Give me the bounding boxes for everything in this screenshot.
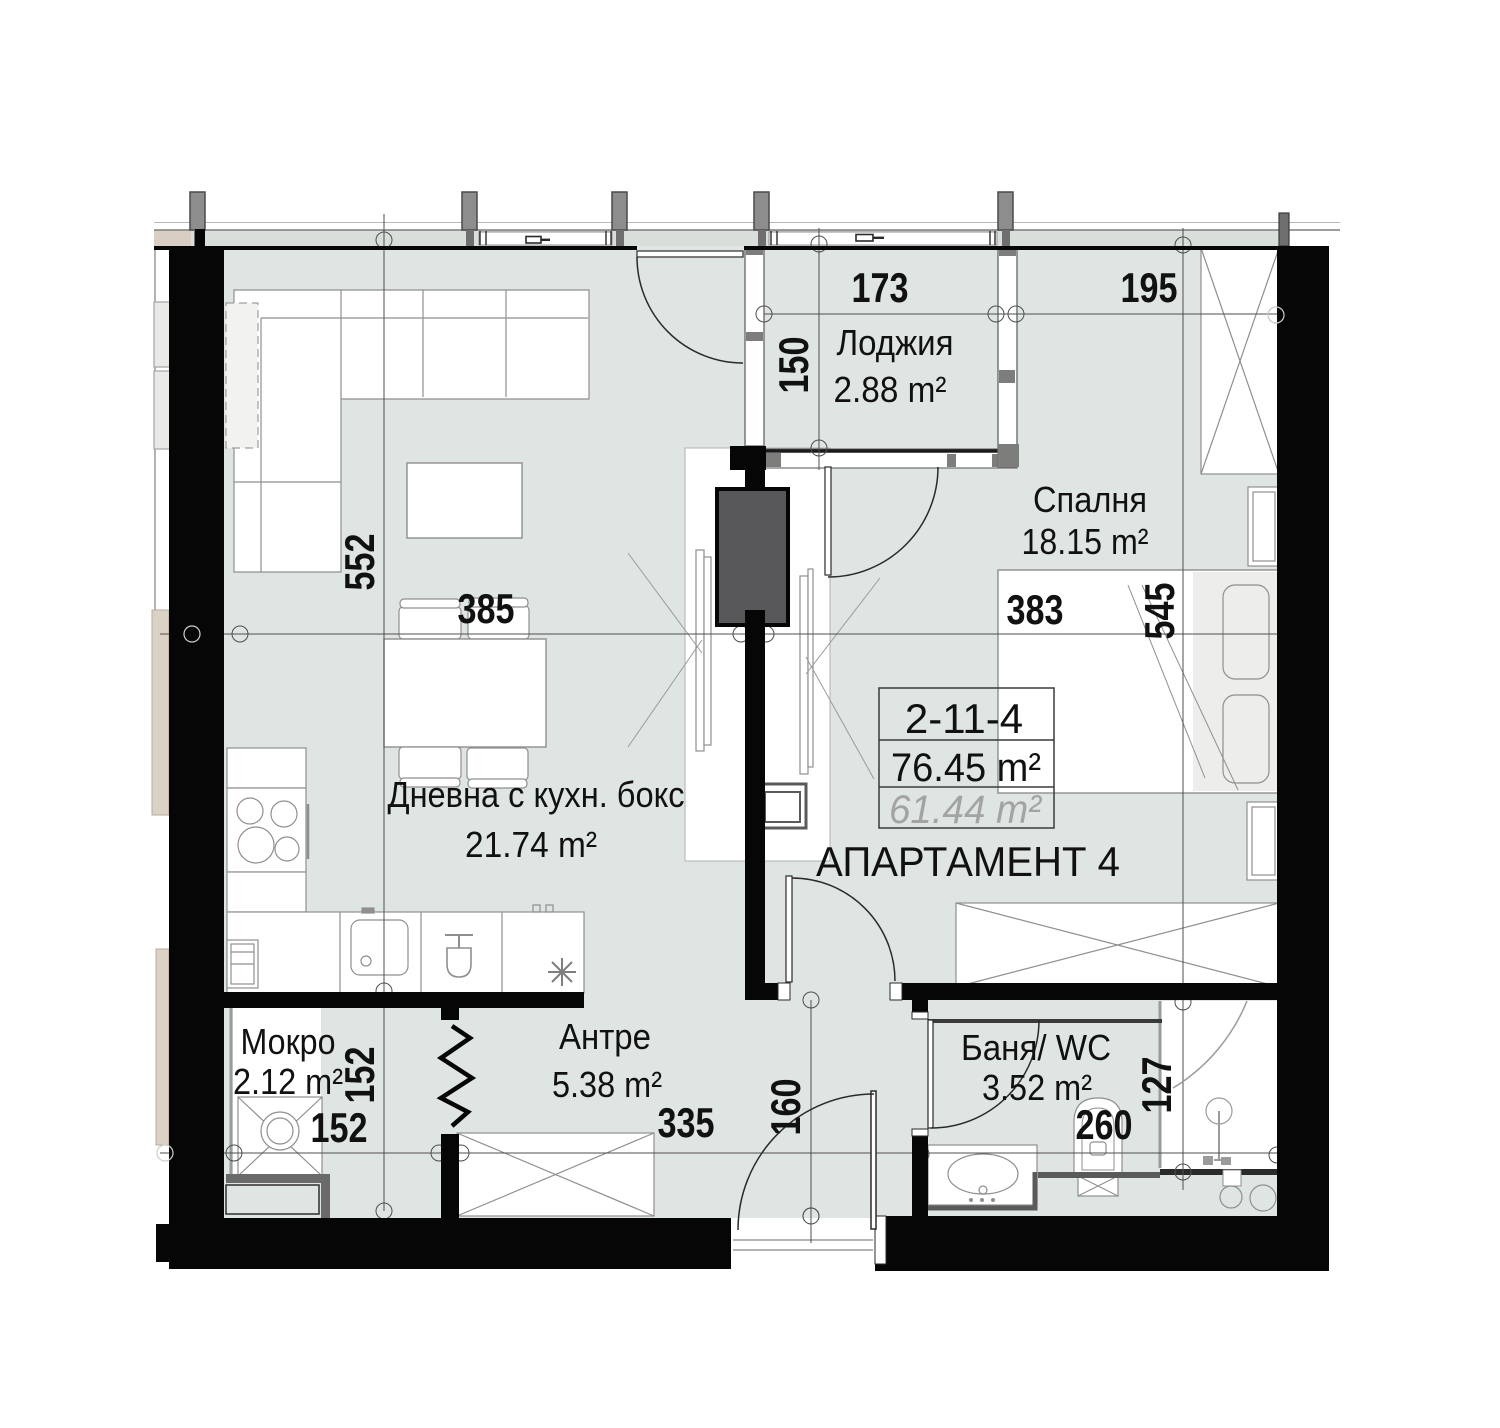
svg-text:2.88 m²: 2.88 m² [834,369,947,410]
svg-text:260: 260 [1076,1101,1133,1148]
svg-text:383: 383 [1007,586,1064,633]
svg-text:173: 173 [852,264,909,311]
svg-text:545: 545 [1136,583,1183,640]
svg-text:АПАРТАМЕНТ 4: АПАРТАМЕНТ 4 [816,838,1120,885]
svg-text:150: 150 [770,337,817,394]
svg-text:195: 195 [1121,264,1178,311]
svg-text:160: 160 [762,1079,809,1136]
svg-text:61.44 m²: 61.44 m² [889,788,1043,832]
svg-text:152: 152 [311,1104,368,1151]
svg-text:Лоджия: Лоджия [837,322,954,363]
svg-text:152: 152 [336,1047,383,1104]
svg-text:2.12 m²: 2.12 m² [233,1061,343,1102]
svg-text:Баня/ WC: Баня/ WC [961,1027,1111,1068]
svg-text:127: 127 [1133,1057,1180,1114]
svg-text:76.45 m²: 76.45 m² [891,746,1041,790]
svg-text:385: 385 [458,585,515,632]
svg-text:Мокро: Мокро [241,1021,336,1062]
svg-text:Спалня: Спалня [1033,479,1147,520]
svg-text:335: 335 [658,1099,715,1146]
svg-text:Антре: Антре [559,1016,651,1057]
svg-text:21.74 m²: 21.74 m² [465,824,597,865]
svg-text:18.15 m²: 18.15 m² [1022,521,1149,562]
svg-text:5.38 m²: 5.38 m² [552,1064,662,1105]
svg-text:Дневна с кухн. бокс: Дневна с кухн. бокс [388,774,685,815]
svg-text:2-11-4: 2-11-4 [905,695,1023,742]
svg-text:552: 552 [336,534,383,591]
